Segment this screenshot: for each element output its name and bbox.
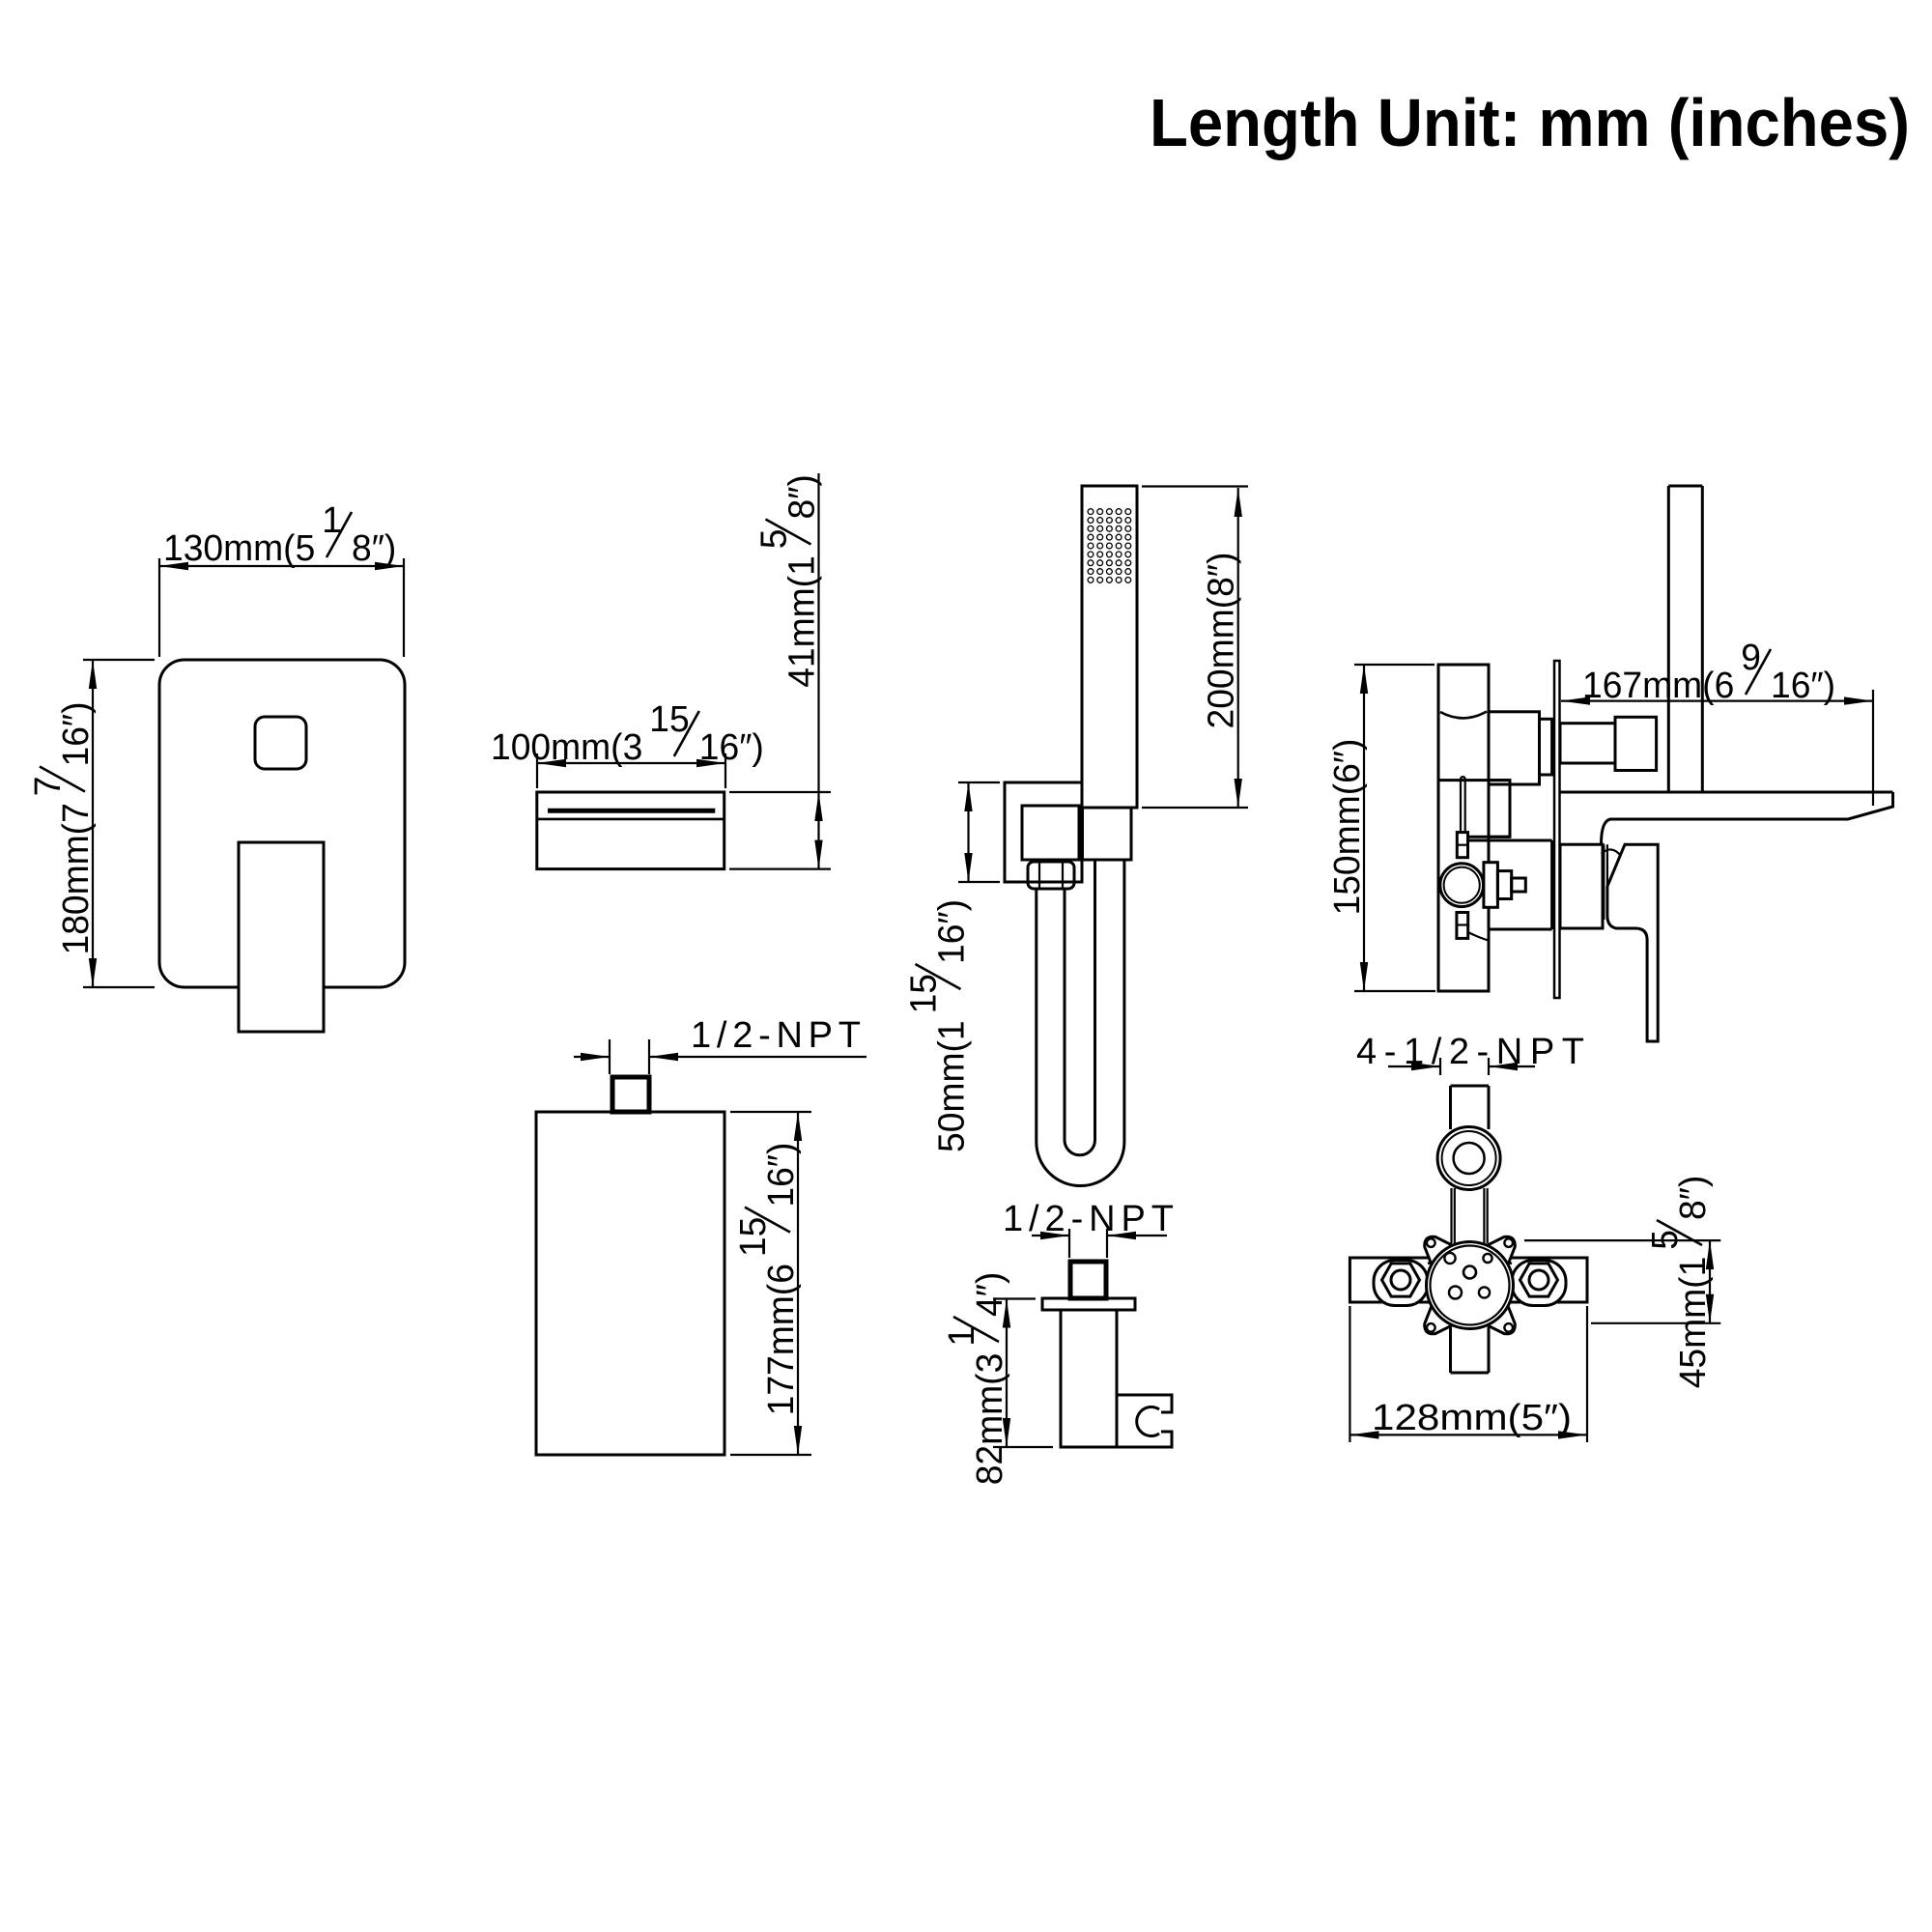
svg-text:8″): 8″) [1673,1176,1714,1220]
svg-text:15: 15 [649,699,689,740]
svg-text:16″): 16″) [1771,666,1835,706]
svg-text:15: 15 [904,974,945,1013]
svg-text:180mm(7: 180mm(7 [56,803,97,954]
svg-text:16″): 16″) [56,702,97,767]
svg-text:50mm(1: 50mm(1 [932,1020,973,1152]
svg-text:82mm(3: 82mm(3 [970,1353,1010,1486]
svg-text:16″): 16″) [932,899,973,964]
svg-text:150mm(6″): 150mm(6″) [1327,739,1368,916]
svg-text:100mm(3: 100mm(3 [491,727,642,768]
svg-text:8″): 8″) [782,474,823,519]
svg-text:130mm(5: 130mm(5 [163,528,315,569]
svg-text:8″): 8″) [352,528,396,569]
svg-text:16″): 16″) [699,727,764,768]
svg-text:Length Unit: mm (inches): Length Unit: mm (inches) [1150,85,1910,160]
svg-text:200mm(8″): 200mm(8″) [1202,553,1242,729]
svg-text:16″): 16″) [761,1143,802,1207]
svg-text:128mm(5″): 128mm(5″) [1372,1398,1572,1438]
svg-text:177mm(6: 177mm(6 [761,1264,802,1415]
svg-text:4″): 4″) [970,1272,1010,1317]
svg-text:45mm(1: 45mm(1 [1673,1257,1714,1389]
svg-text:41mm(1: 41mm(1 [782,555,823,688]
svg-text:15: 15 [733,1217,774,1257]
svg-text:167mm(6: 167mm(6 [1582,666,1734,706]
